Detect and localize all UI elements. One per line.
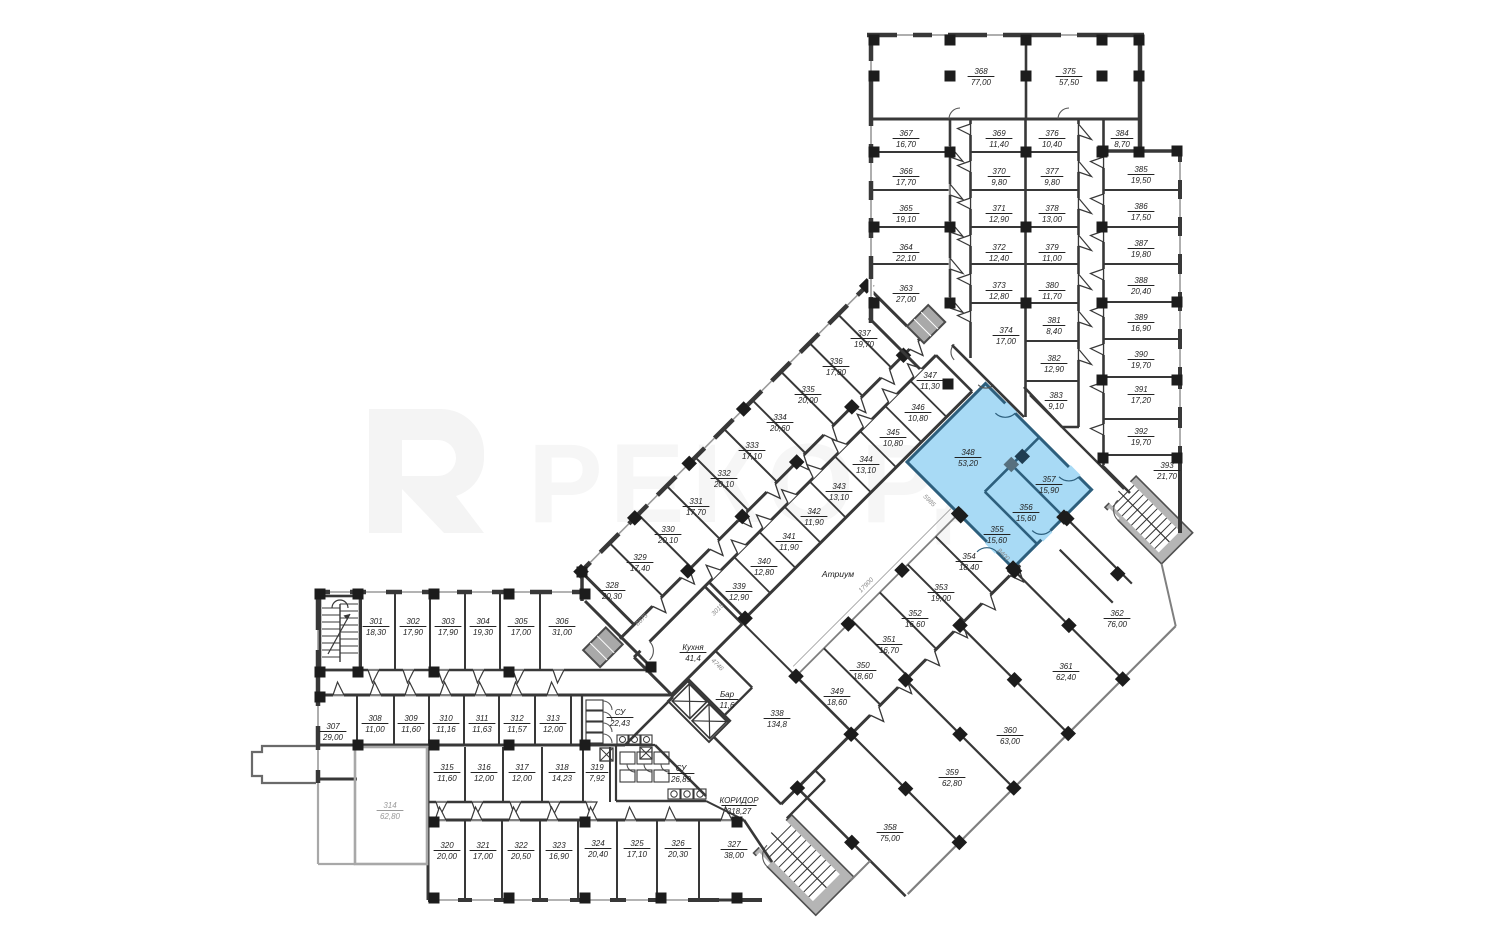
svg-text:392: 392: [1134, 427, 1148, 436]
svg-text:307: 307: [326, 722, 340, 731]
svg-text:15,90: 15,90: [1039, 486, 1060, 495]
svg-text:19,80: 19,80: [1131, 250, 1152, 259]
svg-text:10,40: 10,40: [1042, 140, 1063, 149]
svg-text:384: 384: [1115, 129, 1129, 138]
svg-text:17,10: 17,10: [742, 452, 763, 461]
svg-text:9,10: 9,10: [1048, 402, 1064, 411]
svg-text:380: 380: [1045, 281, 1059, 290]
svg-text:10,80: 10,80: [883, 439, 904, 448]
svg-text:351: 351: [882, 635, 895, 644]
svg-text:16,70: 16,70: [879, 646, 900, 655]
svg-text:332: 332: [717, 469, 731, 478]
svg-text:76,00: 76,00: [1107, 620, 1128, 629]
svg-text:19,70: 19,70: [1131, 438, 1152, 447]
svg-text:21,70: 21,70: [1156, 472, 1178, 481]
svg-text:63,00: 63,00: [1000, 737, 1021, 746]
svg-text:19,70: 19,70: [1131, 361, 1152, 370]
svg-text:8,40: 8,40: [1046, 327, 1062, 336]
svg-text:389: 389: [1134, 313, 1148, 322]
svg-text:11,00: 11,00: [365, 725, 385, 734]
svg-text:333: 333: [745, 441, 759, 450]
svg-text:324: 324: [591, 839, 605, 848]
svg-text:364: 364: [899, 243, 913, 252]
svg-text:18,60: 18,60: [853, 672, 874, 681]
svg-text:11,6: 11,6: [720, 701, 736, 710]
svg-text:363: 363: [899, 284, 913, 293]
svg-text:20,10: 20,10: [713, 480, 735, 489]
svg-text:19,30: 19,30: [473, 628, 494, 637]
svg-text:17,50: 17,50: [1131, 213, 1152, 222]
svg-text:62,80: 62,80: [380, 812, 401, 821]
svg-text:319: 319: [590, 763, 604, 772]
svg-text:306: 306: [555, 617, 569, 626]
svg-text:17,20: 17,20: [1131, 396, 1152, 405]
svg-text:311: 311: [476, 714, 489, 723]
svg-text:75,00: 75,00: [880, 834, 901, 843]
svg-text:342: 342: [807, 507, 821, 516]
svg-text:17,00: 17,00: [996, 337, 1017, 346]
svg-text:12,40: 12,40: [989, 254, 1010, 263]
svg-text:41,4: 41,4: [685, 654, 701, 663]
svg-text:20,40: 20,40: [587, 850, 609, 859]
svg-text:357: 357: [1042, 475, 1056, 484]
svg-text:16,70: 16,70: [896, 140, 917, 149]
svg-text:11,57: 11,57: [507, 725, 527, 734]
svg-text:329: 329: [633, 553, 647, 562]
svg-text:Атриум: Атриум: [821, 569, 854, 579]
svg-text:315: 315: [440, 763, 454, 772]
svg-text:341: 341: [782, 532, 795, 541]
svg-text:303: 303: [441, 617, 455, 626]
svg-text:15,60: 15,60: [1016, 514, 1037, 523]
svg-text:322: 322: [514, 841, 528, 850]
svg-text:9,80: 9,80: [991, 178, 1007, 187]
svg-text:358: 358: [883, 823, 897, 832]
svg-text:386: 386: [1134, 202, 1148, 211]
svg-text:20,60: 20,60: [769, 424, 791, 433]
svg-text:КОРИДОР: КОРИДОР: [719, 796, 759, 805]
svg-text:305: 305: [514, 617, 528, 626]
svg-text:387: 387: [1134, 239, 1148, 248]
svg-text:13,10: 13,10: [856, 466, 877, 475]
svg-text:338: 338: [770, 709, 784, 718]
svg-text:327: 327: [727, 840, 741, 849]
svg-text:17,80: 17,80: [826, 368, 847, 377]
svg-text:359: 359: [945, 768, 959, 777]
svg-text:12,00: 12,00: [543, 725, 564, 734]
svg-text:18,30: 18,30: [366, 628, 387, 637]
svg-text:376: 376: [1045, 129, 1059, 138]
svg-text:53,20: 53,20: [958, 459, 979, 468]
svg-text:17,70: 17,70: [896, 178, 917, 187]
svg-text:8,70: 8,70: [1114, 140, 1130, 149]
svg-text:312: 312: [510, 714, 524, 723]
svg-text:381: 381: [1047, 316, 1060, 325]
svg-text:331: 331: [689, 497, 702, 506]
svg-text:29,00: 29,00: [322, 733, 344, 742]
svg-text:11,60: 11,60: [437, 774, 457, 783]
svg-text:374: 374: [999, 326, 1013, 335]
svg-text:19,50: 19,50: [1131, 176, 1152, 185]
svg-text:12,80: 12,80: [989, 292, 1010, 301]
svg-text:11,40: 11,40: [989, 140, 1009, 149]
svg-text:362: 362: [1110, 609, 1124, 618]
svg-text:11,00: 11,00: [1042, 254, 1062, 263]
svg-text:17,00: 17,00: [473, 852, 494, 861]
svg-text:17,70: 17,70: [686, 508, 707, 517]
svg-text:345: 345: [886, 428, 900, 437]
svg-text:373: 373: [992, 281, 1006, 290]
svg-text:378: 378: [1045, 204, 1059, 213]
svg-text:382: 382: [1047, 354, 1061, 363]
svg-text:11,90: 11,90: [779, 543, 799, 552]
svg-text:352: 352: [908, 609, 922, 618]
svg-text:334: 334: [773, 413, 787, 422]
svg-text:368: 368: [974, 67, 988, 76]
svg-text:337: 337: [857, 329, 871, 338]
svg-text:22,43: 22,43: [609, 719, 631, 728]
svg-text:371: 371: [992, 204, 1005, 213]
svg-text:62,80: 62,80: [942, 779, 963, 788]
svg-text:18,60: 18,60: [827, 698, 848, 707]
svg-text:12,00: 12,00: [474, 774, 495, 783]
svg-text:309: 309: [404, 714, 418, 723]
svg-text:11,16: 11,16: [436, 725, 456, 734]
svg-text:38,00: 38,00: [724, 851, 745, 860]
svg-text:340: 340: [757, 557, 771, 566]
svg-text:11,70: 11,70: [1042, 292, 1062, 301]
svg-text:390: 390: [1134, 350, 1148, 359]
svg-text:356: 356: [1019, 503, 1033, 512]
svg-text:17,90: 17,90: [403, 628, 424, 637]
svg-text:385: 385: [1134, 165, 1148, 174]
svg-text:372: 372: [992, 243, 1006, 252]
svg-text:10,80: 10,80: [908, 414, 929, 423]
svg-text:12,90: 12,90: [1044, 365, 1065, 374]
svg-text:15,60: 15,60: [987, 536, 1008, 545]
svg-text:320: 320: [440, 841, 454, 850]
svg-text:20,30: 20,30: [667, 850, 689, 859]
svg-text:19,10: 19,10: [896, 215, 917, 224]
svg-text:26,89: 26,89: [670, 775, 692, 784]
svg-text:323: 323: [552, 841, 566, 850]
svg-text:326: 326: [671, 839, 685, 848]
svg-text:11,63: 11,63: [472, 725, 492, 734]
svg-text:31,00: 31,00: [552, 628, 573, 637]
svg-text:20,40: 20,40: [1130, 287, 1152, 296]
svg-text:20,10: 20,10: [657, 536, 679, 545]
svg-text:СУ: СУ: [676, 764, 687, 773]
svg-text:317: 317: [515, 763, 529, 772]
svg-text:304: 304: [476, 617, 490, 626]
svg-text:17,00: 17,00: [511, 628, 532, 637]
svg-text:20,00: 20,00: [797, 396, 819, 405]
svg-text:348: 348: [961, 448, 975, 457]
svg-text:27,00: 27,00: [895, 295, 917, 304]
svg-text:62,40: 62,40: [1056, 673, 1077, 682]
svg-text:12,80: 12,80: [754, 568, 775, 577]
svg-text:12,00: 12,00: [512, 774, 533, 783]
svg-text:13,00: 13,00: [1042, 215, 1063, 224]
svg-text:328: 328: [605, 581, 619, 590]
svg-text:20,00: 20,00: [436, 852, 458, 861]
svg-text:354: 354: [962, 552, 976, 561]
svg-text:19,70: 19,70: [854, 340, 875, 349]
svg-text:375: 375: [1062, 67, 1076, 76]
svg-text:17,90: 17,90: [438, 628, 459, 637]
svg-text:347: 347: [923, 371, 937, 380]
svg-text:321: 321: [476, 841, 489, 850]
svg-text:22,10: 22,10: [895, 254, 917, 263]
svg-text:379: 379: [1045, 243, 1059, 252]
svg-text:365: 365: [899, 204, 913, 213]
svg-text:343: 343: [832, 482, 846, 491]
svg-text:12,90: 12,90: [989, 215, 1010, 224]
svg-text:339: 339: [732, 582, 746, 591]
svg-text:336: 336: [829, 357, 843, 366]
svg-text:12,90: 12,90: [729, 593, 750, 602]
svg-text:355: 355: [990, 525, 1004, 534]
svg-text:20,50: 20,50: [510, 852, 532, 861]
svg-text:57,50: 57,50: [1059, 78, 1080, 87]
svg-text:318: 318: [555, 763, 569, 772]
svg-text:302: 302: [406, 617, 420, 626]
svg-text:361: 361: [1059, 662, 1072, 671]
svg-text:349: 349: [830, 687, 844, 696]
svg-text:310: 310: [439, 714, 453, 723]
svg-text:314: 314: [383, 801, 397, 810]
svg-text:СУ: СУ: [615, 708, 626, 717]
svg-text:335: 335: [801, 385, 815, 394]
svg-text:353: 353: [934, 583, 948, 592]
svg-text:360: 360: [1003, 726, 1017, 735]
svg-text:7,92: 7,92: [589, 774, 605, 783]
svg-text:19,00: 19,00: [931, 594, 952, 603]
svg-text:344: 344: [859, 455, 873, 464]
svg-text:16,90: 16,90: [1131, 324, 1152, 333]
svg-text:Кухня: Кухня: [682, 643, 704, 652]
svg-text:367: 367: [899, 129, 913, 138]
svg-text:346: 346: [911, 403, 925, 412]
svg-text:77,00: 77,00: [971, 78, 992, 87]
svg-text:301: 301: [369, 617, 382, 626]
svg-text:383: 383: [1049, 391, 1063, 400]
svg-text:377: 377: [1045, 167, 1059, 176]
svg-text:318,27: 318,27: [727, 807, 752, 816]
svg-text:369: 369: [992, 129, 1006, 138]
svg-text:9,80: 9,80: [1044, 178, 1060, 187]
svg-text:350: 350: [856, 661, 870, 670]
svg-text:330: 330: [661, 525, 675, 534]
svg-text:Бар: Бар: [720, 690, 735, 699]
svg-text:20,30: 20,30: [601, 592, 623, 601]
svg-text:13,10: 13,10: [829, 493, 850, 502]
svg-text:16,90: 16,90: [549, 852, 570, 861]
svg-text:308: 308: [368, 714, 382, 723]
svg-text:17,40: 17,40: [630, 564, 651, 573]
svg-text:11,30: 11,30: [920, 382, 940, 391]
svg-text:391: 391: [1134, 385, 1147, 394]
svg-text:14,23: 14,23: [552, 774, 573, 783]
svg-text:17,10: 17,10: [627, 850, 648, 859]
svg-text:313: 313: [546, 714, 560, 723]
svg-text:16,60: 16,60: [905, 620, 926, 629]
svg-text:11,90: 11,90: [804, 518, 824, 527]
svg-text:11,60: 11,60: [401, 725, 421, 734]
svg-text:388: 388: [1134, 276, 1148, 285]
svg-text:316: 316: [477, 763, 491, 772]
svg-text:366: 366: [899, 167, 913, 176]
svg-text:134,8: 134,8: [767, 720, 788, 729]
svg-text:325: 325: [630, 839, 644, 848]
svg-text:393: 393: [1160, 461, 1174, 470]
svg-text:370: 370: [992, 167, 1006, 176]
svg-text:18,40: 18,40: [959, 563, 980, 572]
